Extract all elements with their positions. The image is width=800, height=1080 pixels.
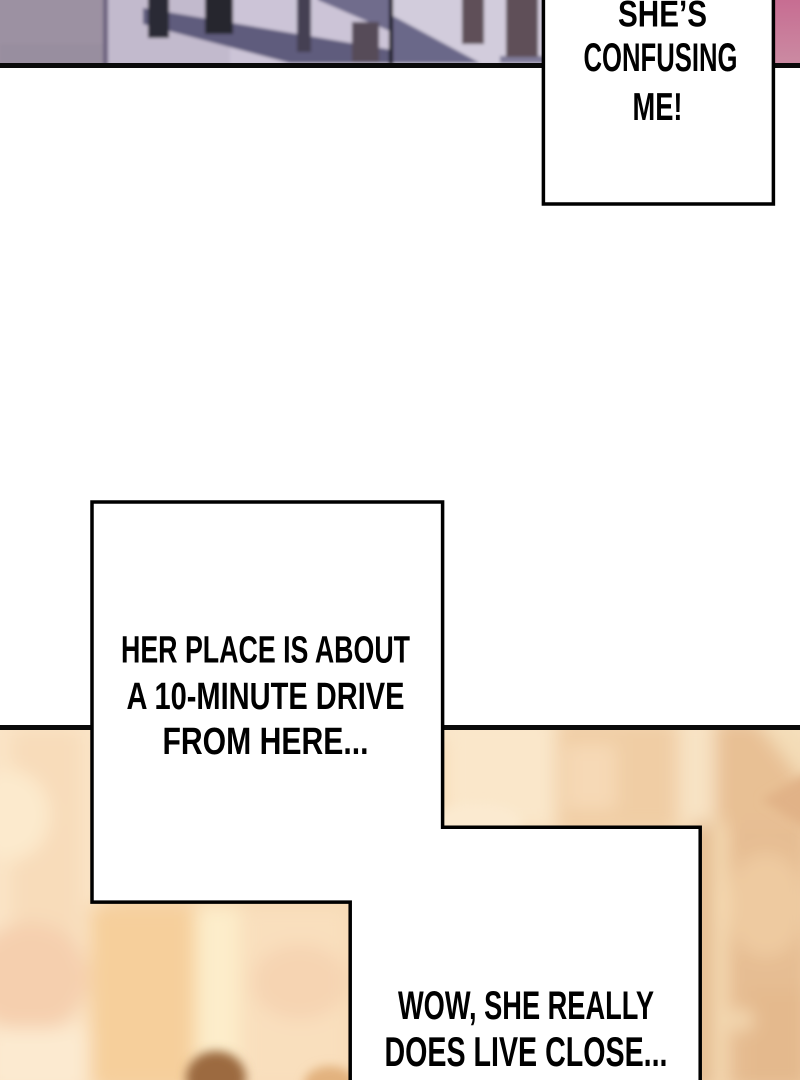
svg-text:HER PLACE IS ABOUT: HER PLACE IS ABOUT [121,630,410,672]
svg-text:FROM HERE...: FROM HERE... [163,721,369,763]
svg-text:A 10-MINUTE DRIVE: A 10-MINUTE DRIVE [127,676,405,718]
svg-text:CONFUSING: CONFUSING [584,36,738,80]
svg-text:SHE’S: SHE’S [618,0,707,35]
svg-text:WOW, SHE REALLY: WOW, SHE REALLY [398,984,654,1028]
svg-text:DOES LIVE CLOSE...: DOES LIVE CLOSE... [385,1028,668,1075]
svg-text:ME!: ME! [633,86,683,129]
